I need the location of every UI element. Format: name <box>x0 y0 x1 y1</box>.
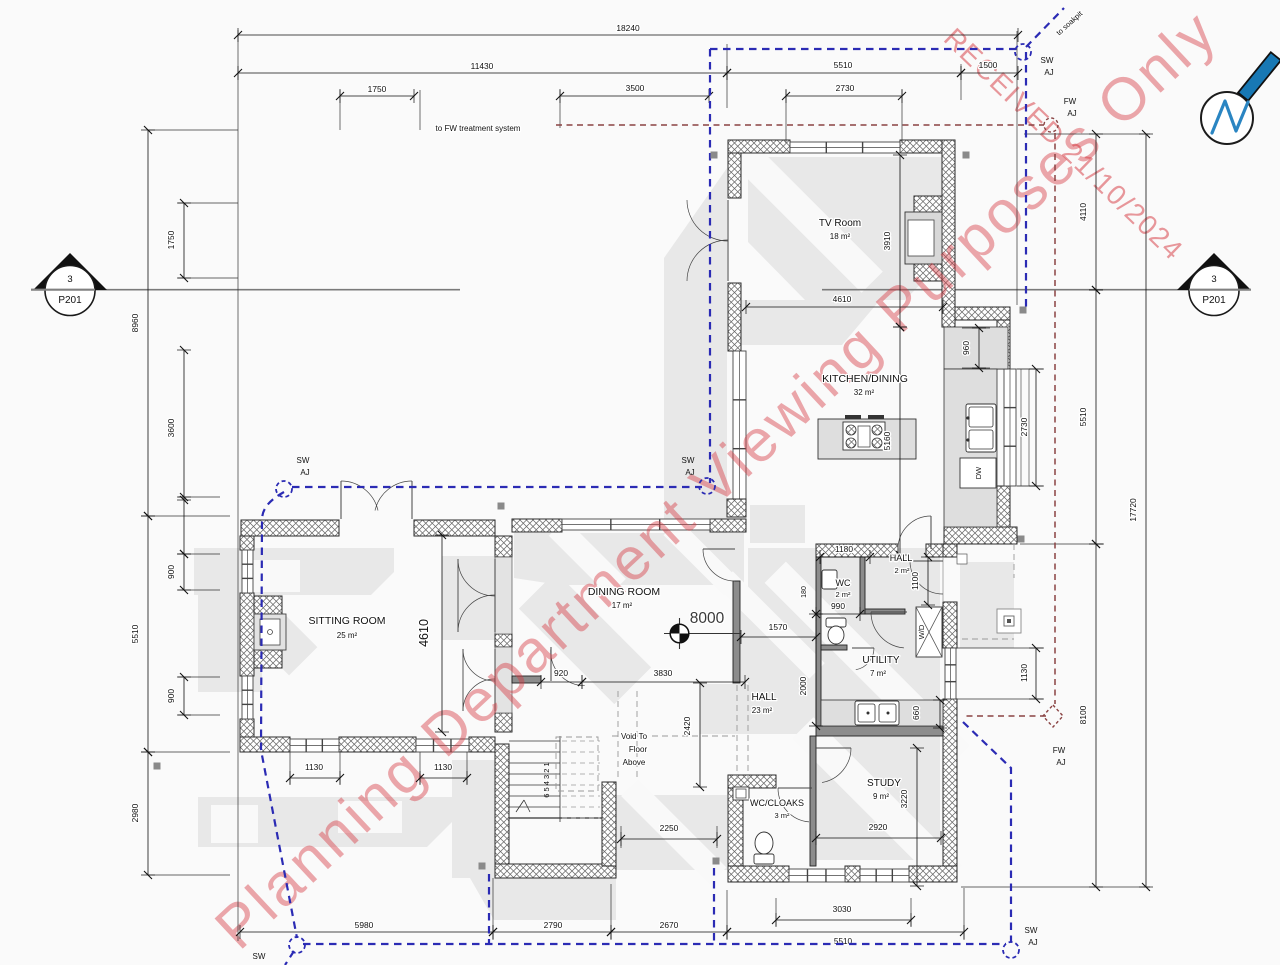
svg-text:P201: P201 <box>58 295 82 306</box>
svg-text:AJ: AJ <box>1028 938 1037 947</box>
svg-text:180: 180 <box>801 586 808 598</box>
svg-text:17720: 17720 <box>1128 498 1138 522</box>
svg-text:8000: 8000 <box>690 610 725 627</box>
svg-text:1750: 1750 <box>166 230 176 249</box>
svg-text:SITTING ROOM: SITTING ROOM <box>309 615 386 627</box>
svg-text:18240: 18240 <box>616 23 640 33</box>
svg-text:Void To: Void To <box>621 732 648 741</box>
svg-text:STUDY: STUDY <box>867 778 901 789</box>
svg-text:AJ: AJ <box>300 468 309 477</box>
svg-text:2980: 2980 <box>130 803 140 822</box>
svg-text:AJ: AJ <box>1067 109 1076 118</box>
svg-text:AJ: AJ <box>685 468 694 477</box>
svg-text:1100: 1100 <box>910 572 920 590</box>
svg-text:23 m²: 23 m² <box>752 706 773 715</box>
svg-text:2420: 2420 <box>682 716 692 735</box>
svg-text:FW: FW <box>1064 97 1077 106</box>
svg-text:9 m²: 9 m² <box>873 792 889 801</box>
svg-text:2730: 2730 <box>1019 417 1029 436</box>
svg-text:920: 920 <box>554 668 568 678</box>
svg-text:3600: 3600 <box>166 418 176 437</box>
svg-text:8960: 8960 <box>130 313 140 332</box>
svg-text:1500: 1500 <box>979 60 998 70</box>
svg-text:5510: 5510 <box>834 60 853 70</box>
svg-text:25 m²: 25 m² <box>337 631 358 640</box>
svg-text:DINING ROOM: DINING ROOM <box>588 586 660 598</box>
svg-text:3 m²: 3 m² <box>775 811 791 820</box>
svg-text:2000: 2000 <box>798 676 808 695</box>
svg-text:17 m²: 17 m² <box>612 601 633 610</box>
svg-text:3030: 3030 <box>833 904 852 914</box>
svg-text:HALL: HALL <box>890 553 913 563</box>
svg-text:HALL: HALL <box>751 692 776 703</box>
svg-text:2920: 2920 <box>869 822 888 832</box>
svg-text:SW: SW <box>1041 56 1054 65</box>
svg-text:8100: 8100 <box>1078 705 1088 724</box>
svg-text:900: 900 <box>166 689 176 703</box>
svg-text:Floor: Floor <box>629 745 648 754</box>
svg-text:960: 960 <box>961 341 971 355</box>
svg-text:1130: 1130 <box>434 762 452 772</box>
svg-text:to FW treatment system: to FW treatment system <box>436 124 521 133</box>
svg-text:5980: 5980 <box>355 920 374 930</box>
svg-text:WC/CLOAKS: WC/CLOAKS <box>750 798 804 808</box>
svg-text:4110: 4110 <box>1078 203 1088 221</box>
svg-text:TV Room: TV Room <box>819 218 861 229</box>
svg-text:UTILITY: UTILITY <box>862 655 900 666</box>
svg-text:3220: 3220 <box>899 789 909 808</box>
svg-text:DW: DW <box>974 466 983 479</box>
svg-text:2730: 2730 <box>836 83 855 93</box>
svg-text:AJ: AJ <box>1056 758 1065 767</box>
svg-text:4610: 4610 <box>833 294 852 304</box>
svg-text:11430: 11430 <box>471 61 494 71</box>
svg-text:1180: 1180 <box>835 544 853 554</box>
svg-text:3: 3 <box>1211 274 1216 285</box>
svg-text:W/D: W/D <box>917 624 926 639</box>
svg-text:3: 3 <box>67 274 72 285</box>
svg-text:990: 990 <box>831 601 845 611</box>
svg-text:660: 660 <box>911 706 921 720</box>
svg-text:FW: FW <box>1053 746 1066 755</box>
svg-text:18 m²: 18 m² <box>830 232 851 241</box>
svg-text:2790: 2790 <box>544 920 563 930</box>
svg-text:2670: 2670 <box>660 920 679 930</box>
svg-text:1750: 1750 <box>368 84 387 94</box>
svg-text:2 m²: 2 m² <box>836 590 852 599</box>
svg-text:KITCHEN/DINING: KITCHEN/DINING <box>822 373 908 385</box>
svg-text:4610: 4610 <box>417 619 431 647</box>
svg-text:AJ: AJ <box>1044 68 1053 77</box>
svg-text:2250: 2250 <box>660 823 679 833</box>
svg-text:1130: 1130 <box>305 762 323 772</box>
svg-text:Above: Above <box>623 758 646 767</box>
svg-text:SW: SW <box>682 456 695 465</box>
svg-text:3500: 3500 <box>626 83 645 93</box>
svg-text:SW: SW <box>297 456 310 465</box>
svg-text:1570: 1570 <box>769 622 788 632</box>
svg-text:1130: 1130 <box>1019 664 1029 682</box>
svg-text:900: 900 <box>166 565 176 579</box>
svg-text:32 m²: 32 m² <box>854 388 875 397</box>
svg-text:3910: 3910 <box>882 231 892 250</box>
svg-text:SW: SW <box>253 952 266 961</box>
svg-text:5510: 5510 <box>130 624 140 643</box>
svg-text:SW: SW <box>1025 926 1038 935</box>
svg-text:5160: 5160 <box>882 431 892 450</box>
svg-text:6 5 4 3 2 1: 6 5 4 3 2 1 <box>542 762 551 797</box>
svg-text:2 m²: 2 m² <box>895 566 911 575</box>
svg-text:3830: 3830 <box>654 668 673 678</box>
svg-text:P201: P201 <box>1202 295 1226 306</box>
svg-text:7 m²: 7 m² <box>870 669 886 678</box>
svg-text:5510: 5510 <box>1078 407 1088 426</box>
svg-text:WC: WC <box>836 578 851 588</box>
